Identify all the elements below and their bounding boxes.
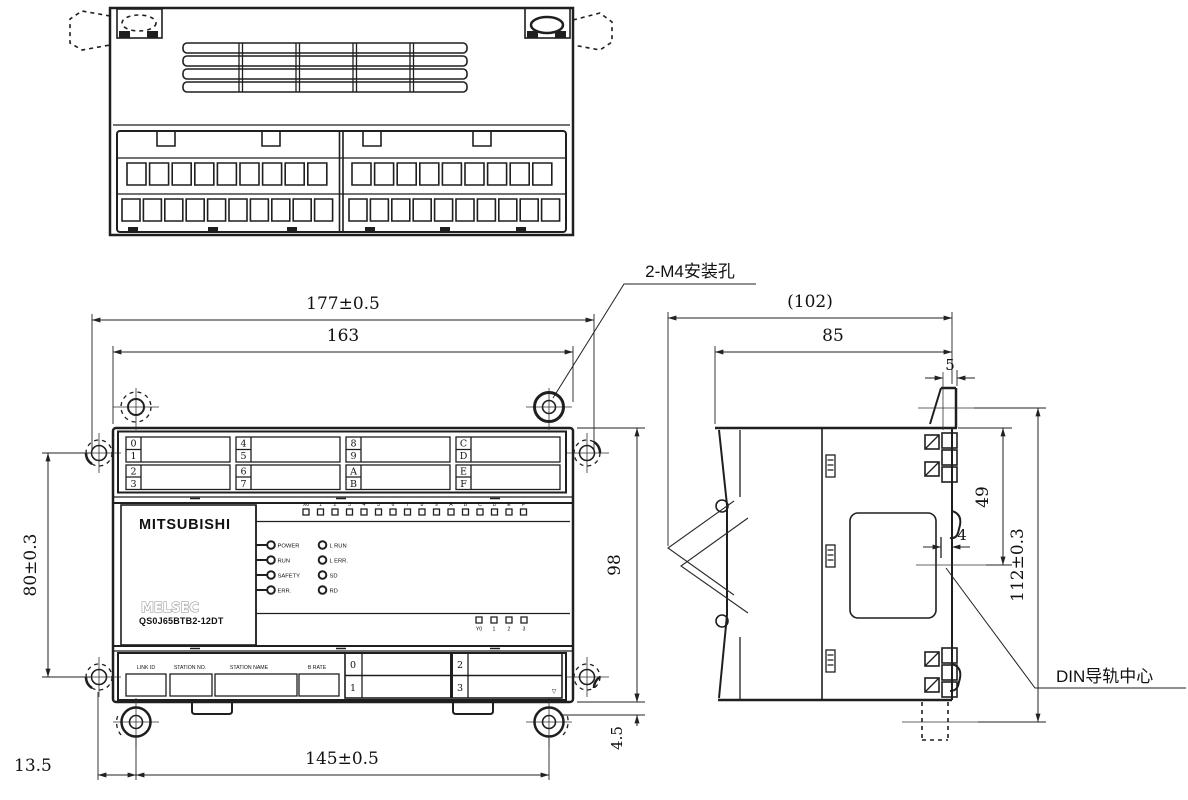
dim-rail-center-offset: 49 [973, 486, 993, 508]
front-panel: MITSUBISHI MELSEC QS0J65BTB2-12DT X0 1 2… [121, 502, 570, 645]
output-led-squares [476, 617, 527, 623]
terminal-number: 4 [240, 439, 246, 450]
mounting-ear-top-right [526, 388, 572, 430]
terminal-number: 2 [130, 467, 136, 478]
cover-seam-top [113, 497, 573, 503]
setting-field-box [126, 674, 166, 696]
dimension-drawing: 0 1 2 3 4 5 6 7 8 9 A [0, 0, 1188, 800]
terminal-cover [113, 125, 570, 232]
din-hook-top [918, 372, 974, 430]
terminal-number: F [460, 479, 467, 490]
terminal-label-group: 4 5 6 7 [236, 437, 340, 490]
setting-cell-number: 2 [457, 660, 463, 671]
setting-field-box [215, 674, 297, 696]
input-led-label: B [464, 502, 468, 508]
input-led-squares [303, 509, 527, 515]
front-view: 0 1 2 3 4 5 6 7 8 9 A [77, 388, 609, 747]
setting-field-box [299, 674, 339, 696]
setting-cell-number: 1 [350, 683, 356, 694]
brand-text: MITSUBISHI [139, 517, 231, 533]
input-led-label: 7 [406, 502, 409, 508]
setting-strip: LINK ID STATION NO. STATION NAME B RATE … [118, 653, 566, 700]
mounting-boss-right [525, 8, 570, 38]
status-led-block: POWER RUN SAFETY ERR. L RUN L ERR. SD RD [256, 541, 348, 594]
setting-cell-number: 3 [457, 683, 463, 694]
input-led-label: 3 [348, 502, 351, 508]
terminal-label-strip: 0 1 2 3 4 5 6 7 8 9 A [118, 432, 566, 493]
output-led-label: 1 [493, 627, 496, 633]
setting-cell-number: 0 [350, 660, 356, 671]
setting-field-label: STATION NAME [230, 665, 269, 671]
model-number: QS0J65BTB2-12DT [139, 616, 224, 626]
input-led-label: 4 [363, 502, 366, 508]
dim-groove-depth: 4 [957, 526, 967, 544]
din-hook-right-phantom [573, 13, 612, 50]
input-led-label: D [493, 502, 497, 508]
input-led-label: 5 [377, 502, 380, 508]
din-rail-center-text: DIN导轨中心 [1056, 667, 1153, 686]
input-led-label: A [449, 502, 453, 508]
terminal-number: 1 [130, 451, 136, 462]
terminal-number: C [460, 439, 467, 450]
dim-overall-height: 112±0.3 [1008, 528, 1028, 602]
cover-seam-bottom [113, 646, 573, 651]
dim-hole-pitch-vertical: 80±0.3 [21, 534, 41, 597]
terminal-number: 0 [130, 439, 136, 450]
terminal-label-group: 0 1 2 3 [126, 437, 230, 490]
dim-foot-height: 4.5 [608, 726, 626, 750]
terminal-number: 9 [350, 451, 356, 462]
foot-left [192, 702, 232, 714]
terminal-label-group: C D E F [456, 437, 560, 490]
dim-overall-width: 177±0.5 [306, 294, 380, 314]
terminal-number: 7 [240, 479, 246, 490]
terminal-number: 8 [350, 439, 356, 450]
dim-hook-width: 5 [945, 356, 955, 374]
terminal-number: D [460, 451, 468, 462]
melsec-logo: MELSEC [141, 601, 199, 616]
input-led-label: 1 [319, 502, 322, 508]
side-recess-panel [850, 513, 936, 618]
setting-field-label: B RATE [308, 665, 327, 671]
mounting-boss-left [117, 9, 162, 38]
output-led-label: 3 [523, 627, 526, 633]
terminal-number: 6 [240, 467, 246, 478]
status-led-label: L RUN [330, 543, 347, 549]
cover-notches [157, 131, 491, 146]
dim-hole-pitch-horizontal: 145±0.5 [305, 749, 379, 769]
status-led-label: L ERR. [330, 558, 349, 564]
input-led-label: F [522, 502, 525, 508]
input-led-label: E [507, 502, 511, 508]
input-led-label: C [478, 502, 482, 508]
dim-body-width: 163 [327, 326, 359, 346]
setting-field-box [170, 674, 212, 696]
terminal-label-group: 8 9 A B [346, 437, 450, 490]
status-led-label: ERR. [278, 588, 292, 594]
input-led-label: 9 [435, 502, 438, 508]
din-latch-phantom [902, 702, 978, 740]
dim-body-height: 98 [605, 554, 625, 576]
dim-hole-edge-offset: 13.5 [14, 756, 52, 776]
dim-body-depth: 85 [822, 326, 844, 346]
vent-slots [183, 43, 467, 92]
mounting-ear-top-left [113, 388, 159, 430]
mounting-ear-side-right-bottom [565, 657, 609, 697]
output-led-label: 2 [508, 627, 511, 633]
dim-overall-depth: (102) [787, 292, 833, 312]
side-connector-marks [826, 455, 835, 672]
din-rail-center-callout: DIN导轨中心 [946, 568, 1186, 688]
input-led-label: X0 [303, 502, 309, 508]
drawing-sheet: 0 1 2 3 4 5 6 7 8 9 A [0, 0, 1188, 800]
side-dimensions: (102) 85 5 49 4 112±0.3 DIN导轨中心 [668, 292, 1186, 722]
side-view [668, 372, 986, 740]
input-led-label: 2 [334, 502, 337, 508]
terminal-number: A [349, 467, 357, 478]
mounting-hole-callout: 2-M4安装孔 [553, 262, 756, 398]
din-hook-left-phantom [70, 11, 110, 50]
delta-mark: ▽ [552, 688, 557, 695]
status-led-label: POWER [278, 543, 300, 549]
status-led-label: SAFETY [278, 573, 301, 579]
terminal-number: E [460, 467, 467, 478]
terminal-squares-lower [122, 199, 560, 221]
setting-field-label: LINK ID [137, 665, 155, 671]
output-led-row: Y0 1 2 3 [476, 617, 527, 633]
status-led-label: SD [330, 573, 338, 579]
setting-field-label: STATION NO. [174, 665, 206, 671]
cover-open-phantom [668, 501, 734, 595]
top-view [70, 8, 612, 235]
input-led-label: 8 [421, 502, 424, 508]
status-led-label: RUN [278, 558, 291, 564]
status-led-label: RD [330, 588, 338, 594]
mounting-hole-callout-text: 2-M4安装孔 [645, 262, 735, 281]
terminal-number: B [350, 479, 357, 490]
terminal-number: 5 [240, 451, 246, 462]
foot-right [453, 702, 493, 714]
terminal-number: 3 [130, 479, 136, 490]
input-led-label: 6 [392, 502, 395, 508]
output-led-label: Y0 [476, 627, 482, 633]
mounting-ear-side-right-top [565, 433, 609, 473]
setting-cell-grid: 0 1 2 3 ▽ [345, 653, 562, 698]
